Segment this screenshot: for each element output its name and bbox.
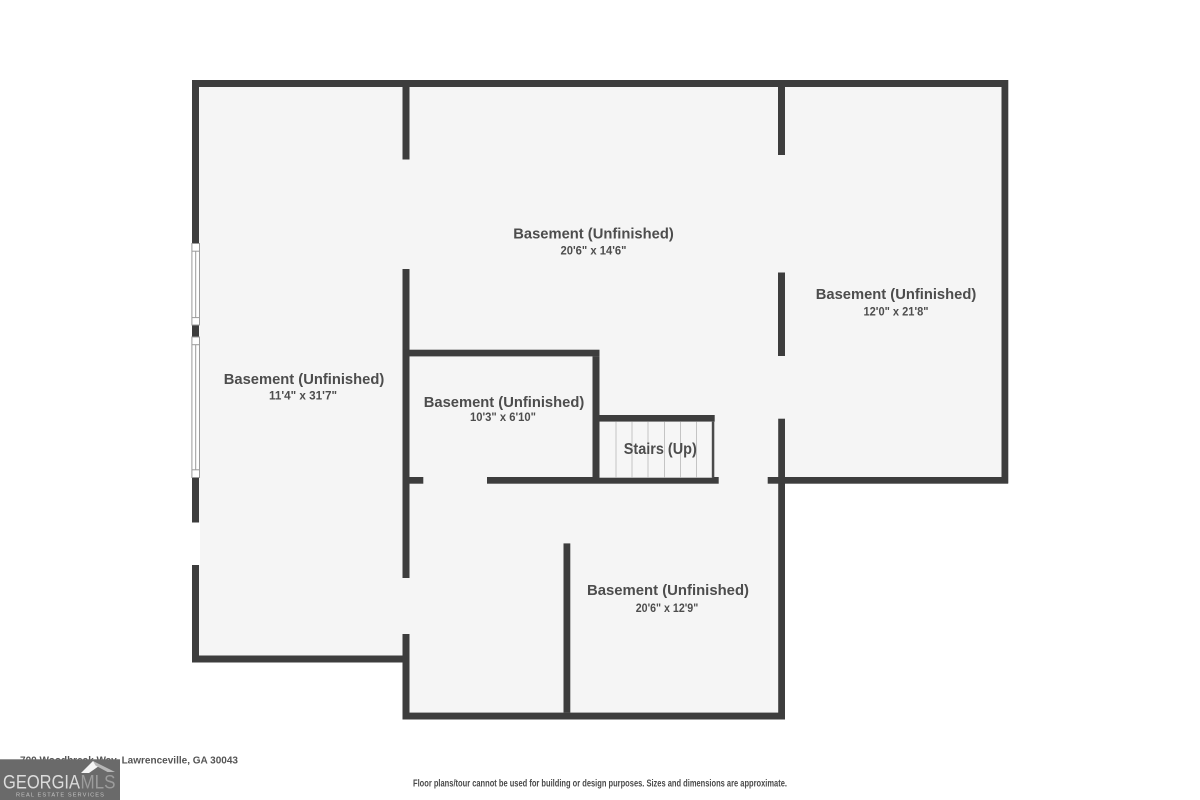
svg-text:REAL ESTATE SERVICES: REAL ESTATE SERVICES [16, 793, 105, 799]
svg-text:Stairs (Up): Stairs (Up) [624, 441, 697, 458]
svg-text:20'6" x 14'6": 20'6" x 14'6" [561, 244, 627, 258]
svg-text:Basement (Unfinished): Basement (Unfinished) [587, 583, 749, 599]
svg-text:Basement (Unfinished): Basement (Unfinished) [513, 227, 674, 243]
svg-text:MLS: MLS [81, 772, 116, 794]
svg-text:12'0" x 21'8": 12'0" x 21'8" [864, 305, 929, 319]
svg-text:Basement (Unfinished): Basement (Unfinished) [224, 372, 385, 388]
svg-text:GEORGIA: GEORGIA [3, 772, 80, 794]
svg-text:11'4" x 31'7": 11'4" x 31'7" [269, 388, 337, 402]
svg-text:Floor plans/tour cannot be use: Floor plans/tour cannot be used for buil… [413, 779, 787, 790]
svg-text:10'3" x 6'10": 10'3" x 6'10" [470, 410, 536, 424]
svg-text:Basement (Unfinished): Basement (Unfinished) [424, 395, 585, 411]
svg-text:20'6" x 12'9": 20'6" x 12'9" [636, 601, 699, 615]
svg-text:Basement (Unfinished): Basement (Unfinished) [816, 287, 977, 303]
